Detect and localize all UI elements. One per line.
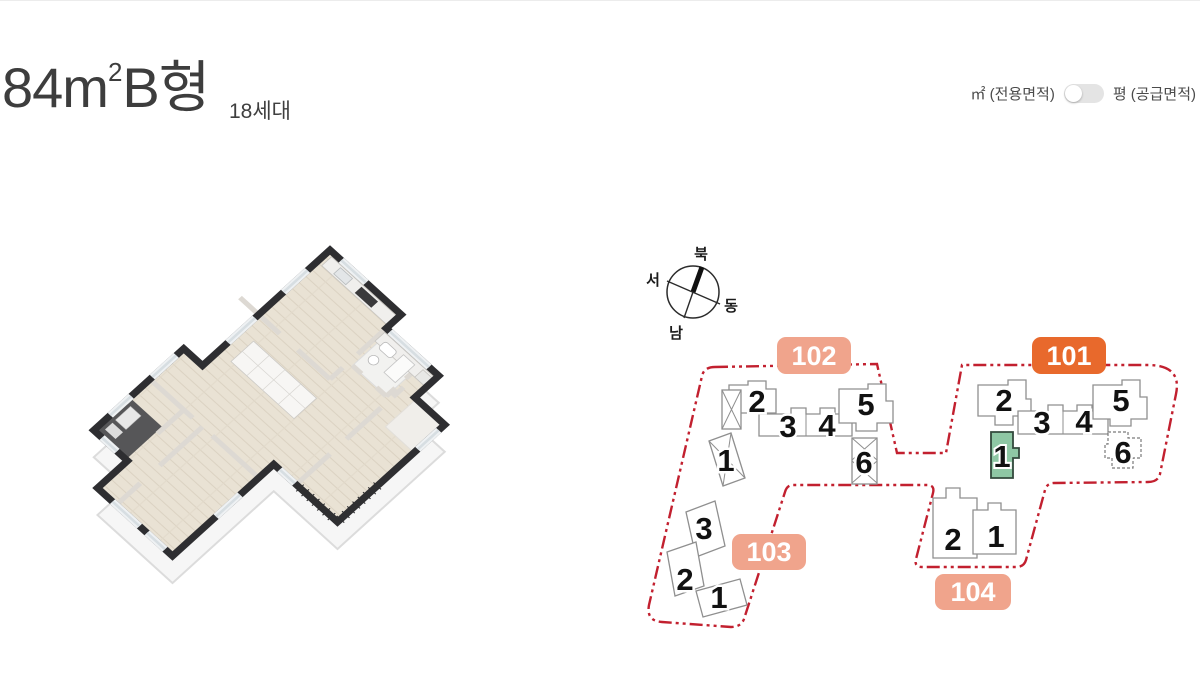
area-unit-toggle[interactable] xyxy=(1064,84,1104,103)
badge-103-label: 103 xyxy=(746,537,791,567)
area-unit-m2-label: ㎡ (전용면적) xyxy=(970,83,1054,104)
page-title: 84m2B형 xyxy=(2,59,209,116)
compass-north-label: 북 xyxy=(694,246,708,263)
unit-number: 4 xyxy=(1075,404,1093,439)
compass-east-label: 동 xyxy=(724,298,738,315)
block-104: 2 1 104 xyxy=(933,488,1016,610)
site-plan-svg: 북 서 동 남 2 3 4 5 xyxy=(620,221,1200,681)
compass-north-needle xyxy=(693,267,702,292)
block-103: 3 2 1 103 xyxy=(667,501,806,617)
unit-number: 2 xyxy=(944,522,961,557)
unit-number-selected: 1 xyxy=(993,439,1010,474)
unit-number: 6 xyxy=(1114,435,1131,470)
toggle-knob xyxy=(1065,85,1082,102)
unit-number: 2 xyxy=(995,383,1012,418)
unit-number: 3 xyxy=(1033,405,1050,440)
unit-number: 2 xyxy=(676,562,693,597)
site-plan: 북 서 동 남 2 3 4 5 xyxy=(620,221,1200,681)
unit-number: 6 xyxy=(855,445,872,480)
compass: 북 서 동 남 xyxy=(646,246,738,342)
block-102: 2 3 4 5 1 6 102 xyxy=(709,337,893,486)
badge-104-label: 104 xyxy=(950,577,995,607)
title-area-number: 84m xyxy=(2,56,108,119)
block-101: 2 3 4 5 1 6 101 xyxy=(978,337,1147,478)
badge-101-label: 101 xyxy=(1046,341,1091,371)
household-count: 18세대 xyxy=(229,95,291,125)
badge-102-label: 102 xyxy=(791,341,836,371)
area-unit-pyeong-label: 평 (공급면적) xyxy=(1113,83,1196,104)
unit-type-page: 84m2B형 18세대 ㎡ (전용면적) 평 (공급면적) xyxy=(0,0,1200,688)
compass-south-label: 남 xyxy=(669,325,683,342)
unit-number: 1 xyxy=(717,443,734,478)
area-unit-toggle-group: ㎡ (전용면적) 평 (공급면적) xyxy=(970,83,1196,104)
floor-plan-body xyxy=(64,233,488,617)
unit-number: 4 xyxy=(818,408,836,443)
floor-plan-svg xyxy=(62,225,514,657)
title-type-suffix: B형 xyxy=(122,56,209,119)
unit-number: 2 xyxy=(748,384,765,419)
floor-plan-3d xyxy=(62,225,514,657)
unit-number: 5 xyxy=(1112,383,1129,418)
unit-number: 3 xyxy=(779,409,796,444)
unit-number: 3 xyxy=(695,511,712,546)
title-superscript: 2 xyxy=(108,57,122,87)
unit-number: 1 xyxy=(710,580,727,615)
unit-number: 5 xyxy=(857,387,874,422)
unit-number: 1 xyxy=(987,519,1004,554)
compass-west-label: 서 xyxy=(646,272,660,289)
